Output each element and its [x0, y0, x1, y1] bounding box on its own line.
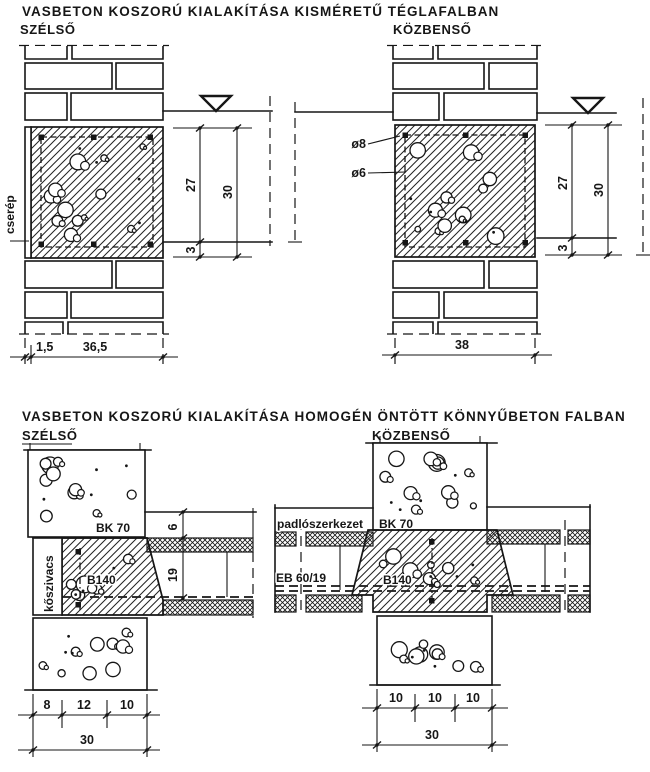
dim-segment-1: 8	[44, 698, 51, 712]
section2-left-label: SZÉLSŐ	[22, 428, 78, 443]
section2-right-label: KÖZBENSŐ	[372, 428, 450, 443]
dim-slab-height: 19	[166, 568, 180, 582]
top-left-ring-beam: cserép	[3, 127, 163, 258]
construction-detail-drawing: VASBETON KOSZORÚ KIALAKÍTÁSA KISMÉRETŰ T…	[0, 0, 650, 772]
dim-cover: 3	[184, 246, 198, 253]
dim-tile-width: 1,5	[36, 340, 53, 354]
dim-segment-2: 10	[428, 691, 442, 705]
dim-beam-height: 27	[184, 178, 198, 192]
dim-segment-3: 10	[466, 691, 480, 705]
dim-floor-thickness: 6	[166, 523, 180, 530]
insulation-label: kőszivacs	[42, 555, 56, 612]
dim-total-width: 30	[425, 728, 439, 742]
slab-type-label: EB 60/19	[276, 571, 326, 585]
dim-wall-width-left: 36,5	[83, 340, 107, 354]
dim-segment-2: 12	[77, 698, 91, 712]
dim-total-height: 30	[221, 185, 235, 199]
section1-left-label: SZÉLSŐ	[20, 22, 76, 37]
dim-cover: 3	[556, 244, 570, 251]
dim-total-width: 30	[80, 733, 94, 747]
dim-beam-height: 27	[556, 176, 570, 190]
section2-title: VASBETON KOSZORÚ KIALAKÍTÁSA HOMOGÉN ÖNT…	[22, 409, 626, 424]
tile-strip	[25, 127, 31, 258]
section1-title: VASBETON KOSZORÚ KIALAKÍTÁSA KISMÉRETŰ T…	[22, 4, 499, 19]
rebar-main-label: ø8	[351, 137, 366, 151]
concrete-grade-label: B140	[87, 573, 116, 587]
wall-material-label: BK 70	[96, 521, 130, 535]
section1-right-label: KÖZBENSŐ	[393, 22, 471, 37]
floor-structure-label: padlószerkezet	[277, 517, 363, 531]
rebar-stirrup-label: ø6	[351, 166, 366, 180]
dim-total-height: 30	[592, 183, 606, 197]
scanned-technical-drawing-page: VASBETON KOSZORÚ KIALAKÍTÁSA KISMÉRETŰ T…	[0, 0, 650, 772]
tile-label: cserép	[3, 195, 17, 234]
slab-bottom-layer	[163, 600, 253, 615]
floor-screed-layer	[147, 538, 253, 552]
wall-material-label: BK 70	[379, 517, 413, 531]
dim-wall-width-right: 38	[455, 338, 469, 352]
dim-segment-1: 10	[389, 691, 403, 705]
dim-segment-3: 10	[120, 698, 134, 712]
concrete-grade-label: B140	[383, 573, 412, 587]
